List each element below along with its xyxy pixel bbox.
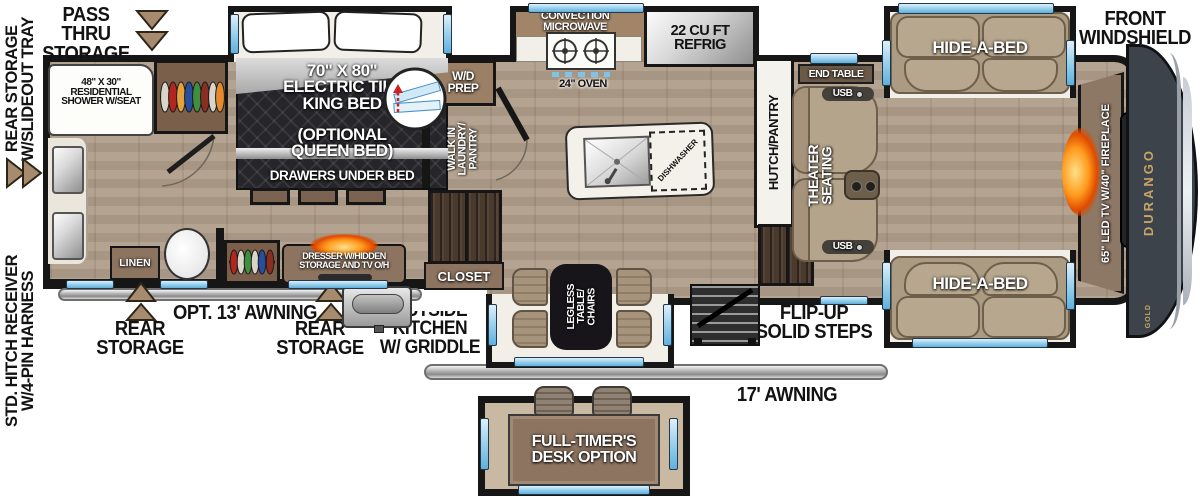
desk-chair — [592, 386, 632, 416]
dresser-label: DRESSER W/HIDDEN STORAGE AND TV O/H — [282, 252, 406, 269]
cupholder — [851, 181, 862, 192]
opt-awning-label: OPT. 13' AWNING — [159, 304, 330, 323]
awning-17-label: 17' AWNING — [704, 386, 870, 405]
linen-label: LINEN — [119, 257, 151, 269]
bathroom-sink-1 — [52, 146, 84, 194]
sofa-top-window — [898, 3, 1054, 14]
tv-fireplace-label: 65" LED TV W/40" FIREPLACE — [1101, 104, 1112, 263]
bed-drawer-2 — [298, 188, 338, 205]
usb-port-top: USB — [822, 87, 874, 101]
tv-fireplace-label-area: 65" LED TV W/40" FIREPLACE — [1094, 78, 1118, 288]
toilet — [164, 228, 210, 280]
hanging-clothes-icon — [157, 63, 225, 131]
desk-inset-window-left — [480, 418, 489, 470]
bed-drawer-3 — [346, 188, 386, 205]
flip-up-steps-label: FLIP-UP SOLID STEPS — [750, 304, 879, 343]
walk-in-pantry-label: WALK IN LAUNDRY/ PANTRY — [447, 123, 479, 175]
pass-thru-arrow-icon — [134, 8, 170, 54]
usb-top-label: USB — [833, 89, 853, 99]
theater-label-area: THEATER SEATING — [796, 100, 846, 252]
desk-chair — [534, 386, 574, 416]
tilt-bed-icon — [382, 66, 448, 132]
bathroom-sink-2 — [52, 212, 84, 260]
usb-icon — [856, 91, 863, 98]
desk-inset-window-right — [669, 418, 678, 470]
rear-storage-tray-label: REAR STORAGE W/SLIDEOUT TRAY — [4, 17, 36, 161]
hutch-pantry-label: HUTCH/PANTRY — [768, 95, 781, 190]
closet-label-box: CLOSET — [424, 262, 504, 290]
sofa-top-window-right — [1066, 40, 1075, 86]
sink-basin-icon — [585, 138, 649, 186]
hide-a-bed-top: HIDE-A-BED — [890, 12, 1070, 94]
shower-label: 48" X 30" RESIDENTIAL SHOWER W/SEAT — [48, 78, 154, 107]
sofa-back-cushion — [896, 296, 980, 338]
sofa-back-cushion — [982, 296, 1066, 338]
hanging-clothes-icon — [227, 243, 277, 281]
microwave-label: CONVECTION MICROWAVE — [512, 11, 638, 32]
dinette-window-bottom — [514, 357, 644, 367]
bed-slideout-window-left — [230, 14, 239, 54]
sofa-bottom-window — [912, 338, 1048, 348]
oven-vent-strip — [552, 72, 610, 77]
desk-label: FULL-TIMER'S DESK OPTION — [532, 434, 637, 465]
hide-a-bed-bottom-label: HIDE-A-BED — [892, 276, 1068, 292]
dinette-chair — [512, 310, 548, 348]
theater-console — [844, 170, 880, 200]
hitch-label-area: STD. HITCH RECEIVER W/4-PIN HARNESS — [0, 196, 40, 486]
closet-door-divider — [465, 193, 468, 261]
usb-icon — [856, 244, 863, 251]
end-table-label: END TABLE — [809, 69, 864, 79]
end-table: END TABLE — [798, 64, 874, 84]
griddle-plate — [352, 294, 404, 314]
bed-drawer-1 — [250, 188, 290, 205]
pillow-left — [241, 10, 330, 53]
oven-label: 24" OVEN — [528, 79, 638, 90]
linen-cabinet: LINEN — [110, 246, 160, 280]
usb-port-bottom: USB — [822, 240, 874, 254]
rear-storage-tray-label-area: REAR STORAGE W/SLIDEOUT TRAY — [0, 0, 40, 178]
entry-cabinet-divider — [786, 227, 789, 283]
dinette-window-right — [663, 304, 672, 346]
dinette-table: LEGLESS TABLE/ CHAIRS — [550, 264, 612, 350]
hutch-pantry: HUTCH/PANTRY — [754, 58, 794, 228]
bedroom-wall-window — [288, 280, 388, 289]
front-cap: DURANGO GOLD — [1126, 44, 1198, 338]
bed-slideout-window-right — [443, 14, 452, 54]
bathroom-door-swing-icon — [156, 132, 220, 190]
dishwasher: DISHWASHER — [649, 130, 707, 192]
windshield-highlight — [1183, 77, 1192, 305]
hitch-label: STD. HITCH RECEIVER W/4-PIN HARNESS — [4, 255, 36, 427]
sofa-seat-cushion — [982, 58, 1058, 92]
dinette-window-left — [488, 304, 497, 346]
bed-drawers-label: DRAWERS UNDER BED — [236, 169, 448, 182]
end-table-window — [810, 53, 858, 64]
desk: FULL-TIMER'S DESK OPTION — [508, 414, 660, 486]
sofa-bottom-window-left — [882, 262, 891, 310]
dinette-chair — [616, 310, 652, 348]
rv-floorplan-canvas: 48" X 30" RESIDENTIAL SHOWER W/SEAT LINE… — [0, 0, 1200, 500]
usb-bottom-label: USB — [833, 242, 853, 252]
bath-wall-window — [66, 280, 114, 289]
kitchen-slideout-window — [528, 3, 644, 13]
brand-logo-area: DURANGO — [1137, 87, 1159, 297]
closet-label: CLOSET — [438, 269, 491, 284]
sofa-seat-cushion — [904, 58, 980, 92]
pass-thru-label: PASS THRU STORAGE — [40, 6, 132, 64]
dinette-chair — [616, 268, 652, 306]
front-windshield-label: FRONT WINDSHIELD — [1077, 10, 1193, 49]
hide-a-bed-bottom: HIDE-A-BED — [890, 256, 1070, 340]
right-bottom-wall-window — [820, 296, 868, 305]
refrigerator: 22 CU FT REFRIG — [644, 9, 756, 67]
bath-bedroom-partition — [216, 228, 224, 288]
awning-arrow-up-icon — [124, 280, 158, 322]
wd-prep-label: W/D PREP — [448, 71, 479, 94]
kitchen-island: DISHWASHER — [565, 121, 715, 200]
refrigerator-label: 22 CU FT REFRIG — [671, 24, 730, 52]
bedroom-wardrobe-bottom — [224, 240, 280, 284]
dinette-chair — [512, 268, 548, 306]
desk-inset-window-bottom — [518, 485, 650, 495]
hide-a-bed-top-label: HIDE-A-BED — [892, 40, 1068, 56]
brand-logo: DURANGO — [1141, 148, 1156, 236]
dinette-label: LEGLESS TABLE/ CHAIRS — [566, 284, 597, 330]
griddle-knob — [374, 325, 384, 333]
sofa-bottom-window-right — [1066, 262, 1075, 310]
pantry-door-swing-icon — [494, 86, 536, 184]
hall-closet-doors — [428, 190, 502, 264]
step-rail-icon — [692, 286, 758, 344]
cooktop — [546, 32, 616, 70]
theater-label: THEATER SEATING — [807, 145, 834, 207]
sofa-top-window-left — [882, 40, 891, 86]
bedroom-wardrobe-top — [154, 60, 228, 134]
rear-storage-left-label: REAR STORAGE — [80, 320, 200, 359]
bath-wall-window — [160, 280, 208, 289]
outside-kitchen-griddle — [342, 286, 412, 328]
burner-grate-icon — [548, 34, 614, 68]
cupholder — [865, 181, 876, 192]
slideout-tray-arrow-icon — [4, 156, 46, 190]
cap-stripe — [1169, 53, 1181, 329]
dishwasher-label: DISHWASHER — [657, 138, 700, 183]
brand-series-area: GOLD — [1139, 299, 1157, 333]
flip-up-steps — [690, 284, 760, 346]
brand-series: GOLD — [1145, 304, 1152, 328]
island-sink — [583, 136, 651, 188]
pillow-right — [333, 10, 422, 53]
